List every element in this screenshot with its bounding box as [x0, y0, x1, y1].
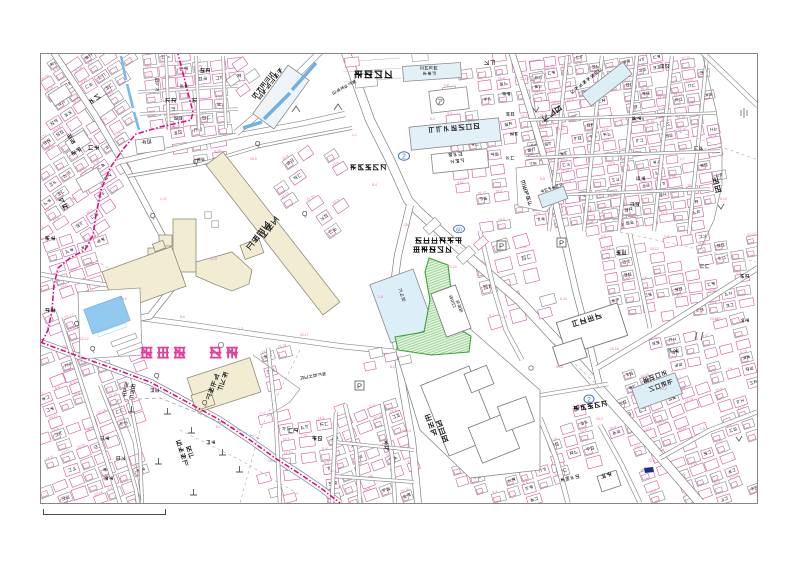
svg-text:ア: ア — [437, 99, 443, 106]
svg-text:60: 60 — [456, 227, 462, 233]
svg-text:1-15: 1-15 — [150, 387, 157, 391]
svg-text:8-8: 8-8 — [689, 102, 695, 107]
svg-text:22-9: 22-9 — [210, 257, 217, 261]
svg-text:15-7: 15-7 — [404, 223, 411, 227]
svg-text:15-11: 15-11 — [556, 127, 565, 131]
svg-text:5-9: 5-9 — [443, 83, 449, 88]
svg-text:8-4: 8-4 — [372, 183, 377, 187]
svg-text:9-5: 9-5 — [604, 138, 610, 143]
svg-text:8-11: 8-11 — [390, 365, 397, 369]
svg-text:5-4: 5-4 — [664, 234, 670, 239]
svg-text:Q: Q — [154, 373, 160, 380]
svg-text:2: 2 — [587, 397, 591, 404]
svg-text:P: P — [559, 239, 564, 248]
svg-text:3-5: 3-5 — [600, 234, 606, 239]
svg-text:7-11: 7-11 — [215, 96, 222, 101]
svg-text:1-10: 1-10 — [520, 245, 527, 249]
svg-text:Q: Q — [74, 321, 80, 328]
svg-text:4-1: 4-1 — [576, 61, 582, 66]
svg-text:15-9: 15-9 — [120, 297, 127, 301]
svg-text:8-6: 8-6 — [180, 315, 185, 319]
svg-text:6-8: 6-8 — [324, 461, 330, 466]
svg-text:22-7: 22-7 — [330, 469, 337, 473]
svg-text:1-7: 1-7 — [680, 157, 685, 161]
svg-text:22-2: 22-2 — [660, 387, 667, 391]
svg-text:9-2: 9-2 — [447, 111, 453, 116]
svg-text:15-2: 15-2 — [596, 417, 603, 421]
svg-text:8-10: 8-10 — [720, 197, 727, 201]
svg-text:11-4: 11-4 — [145, 64, 152, 69]
svg-text:8-8: 8-8 — [540, 177, 545, 181]
svg-text:8-16: 8-16 — [556, 365, 563, 369]
svg-text:22-14: 22-14 — [520, 77, 529, 81]
svg-text:Q: Q — [202, 400, 208, 407]
svg-text:1-13: 1-13 — [500, 315, 507, 319]
svg-text:1-1: 1-1 — [352, 133, 357, 137]
svg-text:22-12: 22-12 — [80, 337, 89, 341]
svg-text:15-1: 15-1 — [70, 197, 77, 201]
svg-text:22-16: 22-16 — [710, 317, 719, 321]
svg-text:22-10: 22-10 — [448, 265, 457, 269]
svg-text:22-5: 22-5 — [648, 459, 655, 463]
svg-text:2: 2 — [402, 154, 406, 161]
svg-text:2-8: 2-8 — [535, 211, 541, 216]
svg-text:15-6: 15-6 — [250, 157, 257, 161]
svg-text:15-4: 15-4 — [268, 459, 275, 463]
svg-text:1-3: 1-3 — [238, 327, 243, 331]
svg-text:22-17: 22-17 — [300, 333, 309, 337]
svg-text:15-14: 15-14 — [402, 429, 411, 433]
svg-text:1-12: 1-12 — [160, 197, 167, 201]
svg-text:P: P — [499, 242, 504, 251]
svg-text:15-16: 15-16 — [610, 347, 619, 351]
svg-text:8-15: 8-15 — [100, 117, 107, 121]
svg-text:8-3: 8-3 — [430, 117, 435, 121]
svg-text:P: P — [357, 382, 362, 391]
svg-text:22-4: 22-4 — [620, 117, 627, 121]
svg-text:1-5: 1-5 — [700, 427, 705, 431]
svg-text:8-13: 8-13 — [560, 297, 567, 301]
svg-text:Q: Q — [90, 346, 96, 353]
svg-text:Q: Q — [150, 213, 156, 220]
svg-text:8-1: 8-1 — [216, 425, 221, 429]
svg-text:1-8: 1-8 — [378, 295, 383, 299]
svg-text:Q: Q — [255, 141, 261, 148]
svg-text:Q: Q — [302, 211, 308, 218]
svg-text:1-17: 1-17 — [460, 177, 467, 181]
svg-text:Q: Q — [193, 159, 199, 166]
svg-text:15-13: 15-13 — [650, 247, 659, 251]
